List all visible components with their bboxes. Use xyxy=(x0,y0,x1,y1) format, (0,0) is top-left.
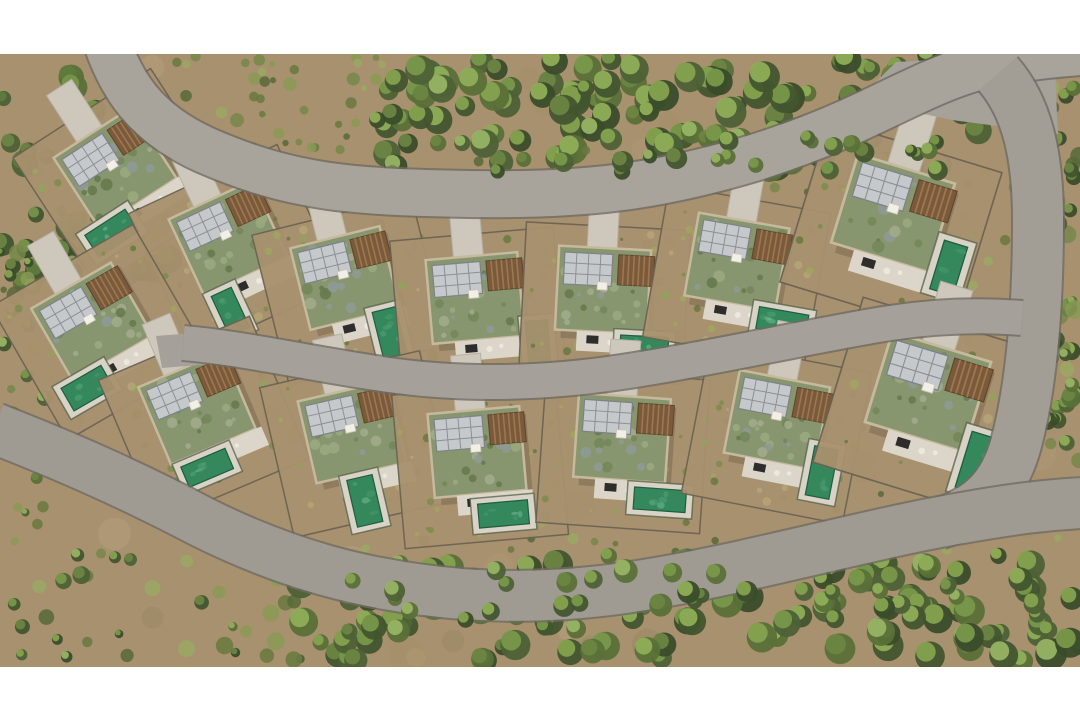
shrub xyxy=(347,72,360,85)
shrub xyxy=(283,77,296,90)
tree-highlight xyxy=(1040,621,1052,633)
tree-highlight xyxy=(342,624,353,635)
shrub xyxy=(241,59,250,68)
tree-highlight xyxy=(109,551,117,559)
shrub xyxy=(361,85,367,91)
letterbox-top xyxy=(0,0,1080,54)
tree-highlight xyxy=(621,55,640,74)
tree-highlight xyxy=(821,162,833,174)
shrub xyxy=(770,182,780,192)
shrub xyxy=(32,580,46,594)
tree-highlight xyxy=(456,97,469,110)
shrub xyxy=(335,145,344,154)
rooflight xyxy=(468,290,479,299)
shrub xyxy=(351,118,360,127)
shrub xyxy=(120,649,133,662)
tree-highlight xyxy=(402,603,413,614)
tree-highlight xyxy=(774,610,792,628)
shrub xyxy=(178,640,195,657)
tree-highlight xyxy=(491,165,500,174)
tree-highlight xyxy=(801,131,811,141)
shrub xyxy=(1054,534,1061,541)
tree-highlight xyxy=(1064,163,1074,173)
tree-highlight xyxy=(1060,349,1068,357)
shrub xyxy=(306,142,316,152)
shrub xyxy=(273,128,284,139)
tree-highlight xyxy=(385,581,399,595)
tree-highlight xyxy=(22,509,27,514)
tree-highlight xyxy=(864,61,875,72)
tree-highlight xyxy=(574,55,593,74)
shrub xyxy=(172,58,181,67)
shrub xyxy=(343,133,350,140)
tree-highlight xyxy=(578,81,589,92)
rooflight xyxy=(616,430,627,439)
shrub xyxy=(253,54,265,66)
shrub xyxy=(37,501,48,512)
shrub xyxy=(260,648,274,662)
rooflight xyxy=(470,444,481,453)
tree-highlight xyxy=(825,585,835,595)
shrub xyxy=(180,554,193,567)
tree-highlight xyxy=(601,129,616,144)
shrub xyxy=(582,146,591,155)
shrub xyxy=(0,287,6,293)
shrub xyxy=(345,97,356,108)
tree-highlight xyxy=(594,71,612,89)
shrub xyxy=(378,61,386,69)
tree-highlight xyxy=(1066,81,1076,91)
shrub xyxy=(144,580,160,596)
tree-highlight xyxy=(849,569,865,585)
shrub xyxy=(262,605,279,622)
tree-highlight xyxy=(991,548,1002,559)
tree-highlight xyxy=(16,649,24,657)
letterbox-bottom xyxy=(0,667,1080,720)
tree-highlight xyxy=(195,595,205,605)
shrub xyxy=(212,586,225,599)
tree-highlight xyxy=(640,102,653,115)
tree-highlight xyxy=(517,152,527,162)
screenshot xyxy=(0,0,1080,720)
tree-highlight xyxy=(313,635,324,646)
aerial-render-photo xyxy=(0,54,1080,667)
shrub xyxy=(11,537,19,545)
tree-highlight xyxy=(581,118,597,134)
shrub xyxy=(256,94,265,103)
shrub xyxy=(270,77,276,83)
tree-highlight xyxy=(874,597,888,611)
tree-highlight xyxy=(868,618,887,637)
shrub xyxy=(474,157,484,167)
tree-highlight xyxy=(825,137,837,149)
tree-highlight xyxy=(643,150,652,159)
tree-highlight xyxy=(749,158,759,168)
tree-highlight xyxy=(115,630,121,636)
tree-highlight xyxy=(229,622,235,628)
tree-highlight xyxy=(554,596,568,610)
shrub xyxy=(1045,438,1056,449)
tree-highlight xyxy=(1061,587,1076,602)
tree-highlight xyxy=(487,59,501,73)
shrub xyxy=(259,76,270,87)
tree-highlight xyxy=(290,608,309,627)
tree-highlight xyxy=(345,573,355,583)
shrub xyxy=(13,503,22,512)
dirt-patch xyxy=(98,517,131,550)
shrub xyxy=(968,281,978,291)
tree-highlight xyxy=(530,83,547,100)
tree-highlight xyxy=(826,634,846,654)
shrub xyxy=(878,491,884,497)
shrub xyxy=(282,140,288,146)
outdoor-kitchen xyxy=(465,344,478,353)
shrub xyxy=(259,111,266,118)
shrub xyxy=(295,139,302,146)
tree-highlight xyxy=(750,62,770,82)
tree-highlight xyxy=(388,620,403,635)
shrub xyxy=(9,244,26,261)
tree-highlight xyxy=(2,134,15,147)
shrub xyxy=(39,609,55,625)
tree-highlight xyxy=(918,555,933,570)
tree-highlight xyxy=(1009,568,1025,584)
tree-highlight xyxy=(650,594,665,609)
shrub xyxy=(361,544,369,552)
shrub xyxy=(591,538,599,546)
shrub xyxy=(1000,235,1010,245)
tree-highlight xyxy=(663,563,676,576)
tree-highlight xyxy=(601,548,612,559)
dirt-patch xyxy=(141,607,163,629)
shrub xyxy=(983,256,993,266)
outdoor-kitchen xyxy=(586,335,598,344)
tree-highlight xyxy=(1059,435,1069,445)
tree-highlight xyxy=(385,69,400,84)
tree-highlight xyxy=(24,258,30,264)
tree-highlight xyxy=(711,153,720,162)
tree-highlight xyxy=(431,135,442,146)
shrub xyxy=(373,54,380,61)
tree-highlight xyxy=(72,549,81,558)
tree-highlight xyxy=(559,136,578,155)
tree-highlight xyxy=(370,112,381,123)
shrub xyxy=(230,113,244,127)
tree-highlight xyxy=(1064,204,1073,213)
shrub xyxy=(216,106,228,118)
solar-array xyxy=(582,399,632,434)
shrub xyxy=(613,541,619,547)
tree-highlight xyxy=(921,143,932,154)
tree-highlight xyxy=(56,573,67,584)
tree-highlight xyxy=(550,95,570,115)
pergola xyxy=(486,258,524,291)
tree-highlight xyxy=(399,134,412,147)
tree-highlight xyxy=(1065,378,1074,387)
rooflight xyxy=(597,282,607,291)
tree-highlight xyxy=(649,81,669,101)
pool-area xyxy=(470,493,537,534)
rooflight xyxy=(731,253,742,263)
tree-highlight xyxy=(1056,628,1076,648)
shrub xyxy=(216,637,233,654)
tree-highlight xyxy=(459,67,478,86)
shrub xyxy=(32,519,43,530)
shrub xyxy=(290,65,299,74)
tree-highlight xyxy=(635,638,652,655)
tree-highlight xyxy=(748,623,768,643)
shrub xyxy=(96,549,106,559)
tree-highlight xyxy=(458,612,469,623)
tree-highlight xyxy=(720,132,733,145)
pergola xyxy=(488,412,526,445)
solar-array xyxy=(563,252,613,286)
tree-highlight xyxy=(383,104,397,118)
shrub xyxy=(82,637,92,647)
shrub xyxy=(267,632,285,650)
tree-highlight xyxy=(362,615,379,632)
tree-highlight xyxy=(666,148,680,162)
tree-highlight xyxy=(682,121,697,136)
shrub xyxy=(1060,362,1075,377)
tree-highlight xyxy=(501,631,521,651)
tree-highlight xyxy=(15,620,25,630)
rooflight xyxy=(771,411,782,421)
tree-highlight xyxy=(679,608,697,626)
shrub xyxy=(508,546,515,553)
tree-highlight xyxy=(510,130,525,145)
tree-highlight xyxy=(567,619,580,632)
scene-svg xyxy=(0,54,1080,667)
tree-highlight xyxy=(990,641,1009,660)
tree-highlight xyxy=(916,642,936,662)
tree-highlight xyxy=(482,603,494,615)
tree-highlight xyxy=(73,567,85,579)
tree-highlight xyxy=(558,640,575,657)
shrub xyxy=(269,61,276,68)
tree-highlight xyxy=(29,207,40,218)
shrub xyxy=(300,106,309,115)
tree-highlight xyxy=(826,610,838,622)
tree-highlight xyxy=(1018,551,1037,570)
outdoor-kitchen xyxy=(604,483,617,492)
tree-highlight xyxy=(716,97,737,118)
tree-highlight xyxy=(707,564,720,577)
shrub xyxy=(370,73,382,85)
tree-highlight xyxy=(613,151,627,165)
dirt-patch xyxy=(442,630,464,652)
tree-highlight xyxy=(706,69,724,87)
tree-highlight xyxy=(581,639,597,655)
tree-highlight xyxy=(471,130,490,149)
tree-highlight xyxy=(406,56,425,75)
tree-highlight xyxy=(413,85,428,100)
shrub xyxy=(180,90,192,102)
tree-highlight xyxy=(52,634,59,641)
tree-highlight xyxy=(906,145,914,153)
shrub xyxy=(240,625,252,637)
tree-highlight xyxy=(928,161,941,174)
tree-highlight xyxy=(706,125,722,141)
shrub xyxy=(335,121,342,128)
tree-highlight xyxy=(8,598,16,606)
shrub xyxy=(353,59,362,68)
tree-highlight xyxy=(124,553,132,561)
tree-highlight xyxy=(948,561,964,577)
shrub xyxy=(182,60,190,68)
tree-highlight xyxy=(956,624,975,643)
tree-highlight xyxy=(5,270,13,278)
tree-highlight xyxy=(455,135,466,146)
tree-highlight xyxy=(675,62,695,82)
shrub xyxy=(7,385,15,393)
tree-highlight xyxy=(1036,639,1057,660)
shrub xyxy=(248,72,261,85)
tree-highlight xyxy=(554,153,567,166)
pergola xyxy=(617,255,655,287)
shrub xyxy=(711,537,718,544)
tree-highlight xyxy=(795,582,808,595)
tree-highlight xyxy=(572,595,583,606)
tree-highlight xyxy=(557,572,571,586)
tree-highlight xyxy=(472,648,487,663)
tree-highlight xyxy=(585,571,597,583)
tree-highlight xyxy=(61,651,69,659)
tree-highlight xyxy=(872,583,883,594)
tree-highlight xyxy=(615,560,631,576)
tree-highlight xyxy=(1024,593,1038,607)
tree-highlight xyxy=(924,604,944,624)
tree-highlight xyxy=(881,566,897,582)
tree-highlight xyxy=(487,562,500,575)
tree-highlight xyxy=(940,579,951,590)
pergola xyxy=(636,403,674,435)
tree-highlight xyxy=(345,649,360,664)
tree-highlight xyxy=(737,581,751,595)
tree-highlight xyxy=(844,135,855,146)
tree-highlight xyxy=(678,581,693,596)
rooflight xyxy=(344,423,356,433)
